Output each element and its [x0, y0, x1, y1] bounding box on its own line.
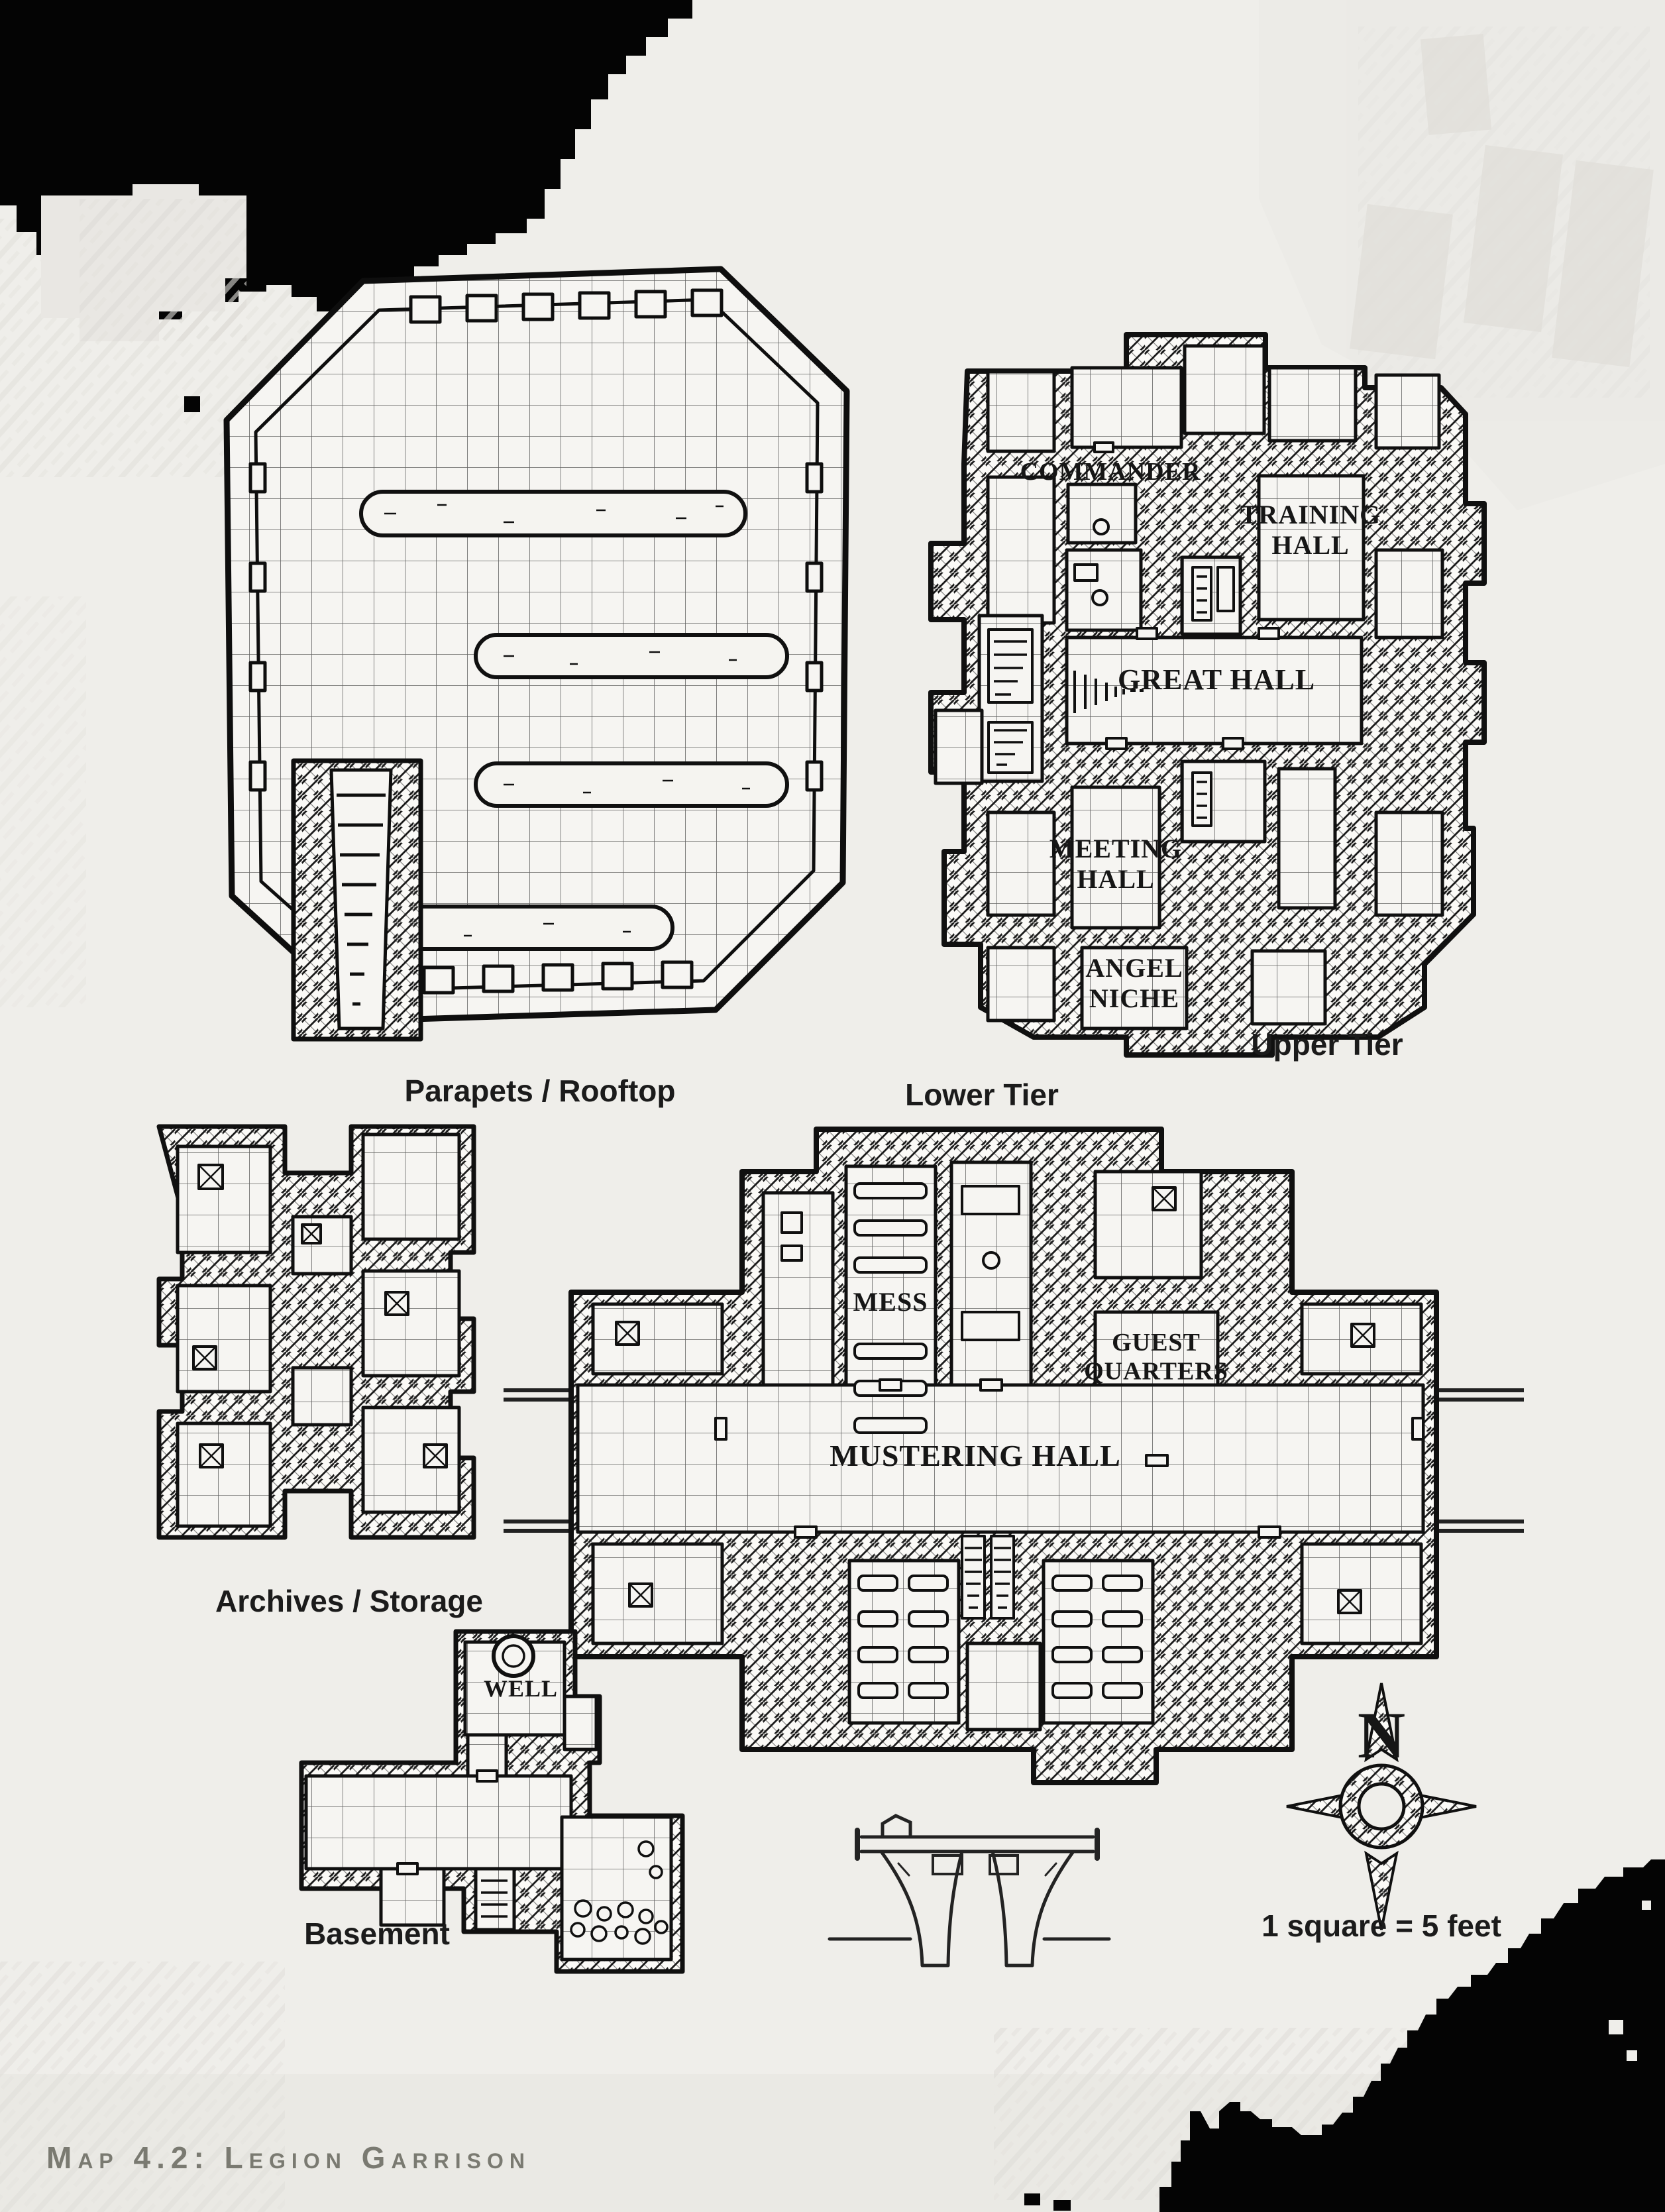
room-top-b [1072, 368, 1181, 447]
room-tower [1185, 346, 1264, 433]
room-top-a [988, 372, 1054, 451]
archives-level [159, 1127, 474, 1537]
map-caption: Map 4.2: Legion Garrison [46, 2140, 531, 2175]
room-rubble [562, 1817, 671, 1960]
basement-label: Basement [304, 1916, 450, 1951]
room-basement-stair [476, 1869, 514, 1930]
well-label: WELL [484, 1675, 558, 1702]
compass-north-letter: N [1358, 1698, 1405, 1772]
map-page: Parapets / Rooftop [0, 0, 1665, 2212]
archives-label: Archives / Storage [215, 1584, 483, 1618]
parapets-label: Parapets / Rooftop [405, 1074, 676, 1108]
room-left-a [988, 477, 1054, 623]
parapets-level [227, 269, 847, 1039]
room-right-a [1376, 550, 1442, 637]
room-left-bump [936, 710, 982, 783]
room-bottom-b [988, 948, 1054, 1021]
room-bottom-a [988, 812, 1054, 915]
great-hall-label: GREAT HALL [1118, 663, 1315, 696]
well-icon [494, 1636, 533, 1676]
upper-tier-label: Upper Tier [1251, 1027, 1403, 1062]
commander-label: COMMANDER [1020, 458, 1201, 486]
paper-watermark-left-edge [0, 596, 86, 1007]
parapets-stair-block [294, 761, 421, 1039]
mess-label: MESS [853, 1287, 928, 1317]
room-top-d [1376, 375, 1439, 448]
map-scale-note: 1 square = 5 feet [1262, 1908, 1501, 1943]
room-bottom-center [967, 1643, 1040, 1730]
mustering-hall-label: MUSTERING HALL [830, 1439, 1121, 1472]
room-basement-hall [306, 1776, 571, 1869]
room-center-c [1279, 769, 1335, 908]
room-right-b [1376, 812, 1442, 915]
room-top-c [1269, 368, 1356, 441]
room-west-upper [593, 1304, 722, 1374]
room-northeast [1095, 1172, 1201, 1278]
room-west-lower [593, 1544, 722, 1643]
angel-niche-label: ANGELNICHE [1085, 953, 1183, 1013]
room-bottom-c [1252, 951, 1325, 1024]
map-canvas: Parapets / Rooftop [0, 0, 1665, 2212]
lower-tier-label: Lower Tier [905, 1078, 1059, 1112]
compass-ring-center [1359, 1784, 1404, 1829]
